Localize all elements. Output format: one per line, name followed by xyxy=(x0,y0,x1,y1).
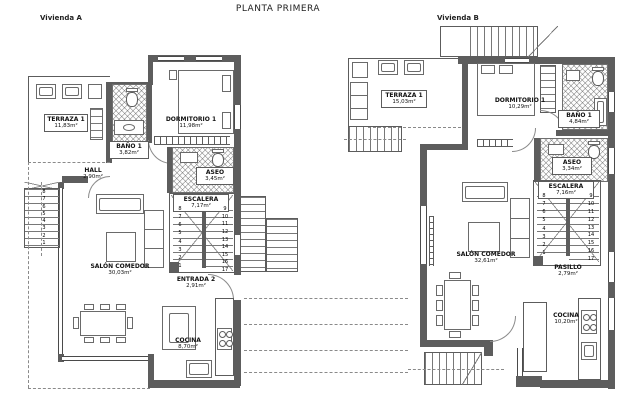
sofa-cushions xyxy=(465,186,505,199)
wall xyxy=(148,55,153,85)
chair xyxy=(116,337,126,343)
pillow xyxy=(222,75,231,92)
door-arc xyxy=(490,316,516,342)
stair-step-number: 7 xyxy=(42,197,45,202)
stair-step-number: 15 xyxy=(588,241,594,246)
window xyxy=(608,148,615,174)
stair-step-number: 17 xyxy=(588,257,594,262)
unit-a-label: Vivienda A xyxy=(40,14,82,22)
stair-step-number: 1 xyxy=(542,251,545,256)
dining-table xyxy=(444,280,471,330)
window xyxy=(62,356,150,361)
stair-step-number: 8 xyxy=(42,190,45,195)
chair xyxy=(472,285,479,296)
room-area: 15,03m² xyxy=(384,99,424,106)
wall xyxy=(420,340,492,347)
toilet-icon xyxy=(126,92,138,107)
stair-step-number: 14 xyxy=(222,245,228,250)
exterior-stair-right-lower xyxy=(266,218,298,272)
boundary-dashed xyxy=(28,388,150,389)
stair-numbers-right: 91011121314151617 xyxy=(218,207,232,273)
chair xyxy=(436,300,443,311)
room-area: 3,34m² xyxy=(555,166,589,173)
room-label-bano-b: BAÑO 1 4,84m² xyxy=(558,110,600,128)
stair-step-number: 2 xyxy=(542,243,545,248)
room-area: 3,82m² xyxy=(112,150,146,157)
radiator-icon xyxy=(477,139,513,147)
setback-line xyxy=(244,324,408,325)
chair xyxy=(84,337,94,343)
sofa xyxy=(350,82,368,120)
stair-step-number: 8 xyxy=(178,207,181,212)
armchair-seat xyxy=(65,87,79,96)
wall xyxy=(516,376,542,387)
chaise-cushion xyxy=(145,230,163,249)
room-area: 4,84m² xyxy=(561,119,597,126)
stair-step-number: 2 xyxy=(42,234,45,239)
room-label-dormitorio-a: DORMITORIO 1 11,98m² xyxy=(160,116,222,130)
sofa-cushion xyxy=(351,83,367,96)
window xyxy=(608,92,615,112)
unit-b-label: Vivienda B xyxy=(437,14,479,22)
stair-step-number: 3 xyxy=(542,235,545,240)
room-label-pasillo-b: PASILLO 2,79m² xyxy=(546,264,590,278)
door-arc xyxy=(512,128,536,152)
axis-line xyxy=(344,139,406,140)
room-label-hall-a: HALL 2,90m² xyxy=(72,167,114,181)
stair-step-number: 17 xyxy=(222,268,228,273)
sink-counter xyxy=(180,152,198,163)
room-area: 30,03m² xyxy=(86,270,154,277)
exterior-stair-right-upper xyxy=(240,196,266,272)
dining-table xyxy=(80,311,126,336)
room-area: 10,29m² xyxy=(490,104,550,111)
chair xyxy=(436,285,443,296)
chair xyxy=(472,315,479,326)
room-area: 2,90m² xyxy=(72,174,114,181)
wall xyxy=(533,256,543,266)
side-table xyxy=(352,62,368,78)
armchair xyxy=(62,84,82,99)
stair-step-number: 6 xyxy=(42,205,45,210)
window xyxy=(608,252,615,282)
pillow xyxy=(499,65,513,74)
stair-step-number: 12 xyxy=(588,218,594,223)
wall xyxy=(540,380,610,388)
stair-step-number: 3 xyxy=(178,248,181,253)
chaise xyxy=(144,210,164,268)
sink-counter xyxy=(566,70,580,81)
room-area: 8,70m² xyxy=(166,344,210,351)
stair-step-number: 7 xyxy=(178,215,181,220)
side-table xyxy=(88,84,102,99)
pillow xyxy=(481,65,495,74)
room-label-terraza-a: TERRAZA 1 11,83m² xyxy=(44,114,88,132)
sofa-cushions xyxy=(99,198,141,211)
wall xyxy=(234,300,241,386)
armchair xyxy=(378,60,398,75)
stair-step-number: 11 xyxy=(588,210,594,215)
stair-step-number: 3 xyxy=(42,226,45,231)
burner-icon xyxy=(590,324,597,331)
chair xyxy=(116,304,126,310)
burner-icon xyxy=(219,331,226,338)
room-label-dormitorio-b: DORMITORIO 1 10,29m² xyxy=(490,97,550,111)
stair-step-number: 6 xyxy=(542,210,545,215)
chair xyxy=(449,272,461,279)
sink-counter xyxy=(548,144,564,155)
floor-plan-canvas: PLANTA PRIMERA Vivienda A Vivienda B TER… xyxy=(0,0,630,401)
chair xyxy=(100,337,110,343)
chair xyxy=(100,304,110,310)
setback-line xyxy=(244,350,408,351)
boundary-dashed xyxy=(28,162,110,163)
radiator-icon xyxy=(429,216,434,266)
stair-step-number: 1 xyxy=(42,241,45,246)
room-area: 10,20m² xyxy=(542,319,590,326)
setback-line xyxy=(244,372,408,373)
stair-step-number: 8 xyxy=(542,194,545,199)
stair-step-number: 15 xyxy=(222,253,228,258)
room-area: 11,98m² xyxy=(160,123,222,130)
stair-stringer xyxy=(566,194,570,256)
window xyxy=(234,105,241,129)
stair-step-number: 2 xyxy=(178,256,181,261)
stair-step-number: 16 xyxy=(222,260,228,265)
stair-stringer xyxy=(202,208,206,268)
armchair-seat xyxy=(39,87,53,96)
stair-step-number: 9 xyxy=(223,207,226,212)
stair-step-number: 5 xyxy=(542,218,545,223)
stair-step-number: 4 xyxy=(42,219,45,224)
wall xyxy=(556,130,608,136)
stair-numbers-right: 91011121314151617 xyxy=(584,194,598,262)
armchair-seat xyxy=(407,63,421,72)
chaise xyxy=(510,198,530,258)
window xyxy=(608,298,615,330)
stair-step-number: 7 xyxy=(542,202,545,207)
sofa-cushion xyxy=(351,96,367,109)
armchair xyxy=(404,60,424,75)
stove-icon xyxy=(217,328,232,350)
burner-icon xyxy=(219,340,226,347)
room-label-aseo-b: ASEO 3,34m² xyxy=(552,157,592,175)
sink-basin-icon xyxy=(123,124,135,131)
sink-icon xyxy=(186,360,212,378)
stair-step-number: 9 xyxy=(589,194,592,199)
page-title: PLANTA PRIMERA xyxy=(198,4,358,14)
room-label-salon-b: SALÓN COMEDOR 32,61m² xyxy=(456,251,516,265)
stair-step-number: 5 xyxy=(42,212,45,217)
room-label-entrada-a: ENTRADA 2 2,91m² xyxy=(170,276,222,290)
coffee-table xyxy=(106,232,136,262)
roof-stair-hatch xyxy=(470,27,537,56)
sofa xyxy=(96,194,144,214)
chair xyxy=(472,300,479,311)
chair xyxy=(449,331,461,338)
burner-icon xyxy=(226,331,233,338)
wall xyxy=(484,340,493,356)
bedside-table xyxy=(169,70,177,80)
pillow xyxy=(222,112,231,129)
room-area: 2,91m² xyxy=(170,283,222,290)
room-label-salon-a: SALÓN COMEDOR 30,03m² xyxy=(86,263,154,277)
wall xyxy=(148,380,240,388)
stair-step-number: 13 xyxy=(588,226,594,231)
chaise-cushion xyxy=(511,199,529,219)
chair xyxy=(84,304,94,310)
toilet-icon xyxy=(592,71,604,86)
sink-icon xyxy=(581,342,597,360)
wall xyxy=(462,57,468,149)
stair-step-number: 4 xyxy=(178,240,181,245)
boundary-dashed xyxy=(28,162,29,388)
toilet-icon xyxy=(212,153,224,167)
room-label-terraza-b: TERRAZA 1 15,03m² xyxy=(381,90,427,108)
wall xyxy=(420,144,427,206)
axis-line xyxy=(408,369,504,370)
stair-step-number: 10 xyxy=(588,202,594,207)
window xyxy=(196,56,222,61)
chair xyxy=(73,317,79,329)
stair-step-number: 10 xyxy=(222,215,228,220)
wall xyxy=(420,144,468,150)
burner-icon xyxy=(590,314,597,321)
burner-icon xyxy=(226,340,233,347)
chair xyxy=(436,315,443,326)
window xyxy=(420,206,427,264)
chaise-cushion xyxy=(511,219,529,239)
coffee-table xyxy=(468,222,500,252)
setback-line xyxy=(244,298,408,299)
stair-step-number: 5 xyxy=(178,231,181,236)
room-area: 3,45m² xyxy=(199,176,231,183)
room-area: 32,61m² xyxy=(456,258,516,265)
chaise-cushion xyxy=(145,211,163,230)
sink-basin-icon xyxy=(189,363,209,375)
stair-step-number: 14 xyxy=(588,233,594,238)
roof-diagonal xyxy=(528,26,558,57)
sink-basin-icon xyxy=(584,345,594,357)
chair xyxy=(127,317,133,329)
wall xyxy=(147,84,152,143)
bench xyxy=(90,108,103,140)
sink-counter xyxy=(114,120,144,135)
sofa xyxy=(462,182,508,202)
stair-step-number: 12 xyxy=(222,230,228,235)
room-label-cocina-b: COCINA 10,20m² xyxy=(542,312,590,326)
stair-step-number: 13 xyxy=(222,238,228,243)
stair-numbers-outer: 87654321 xyxy=(40,190,48,246)
wall xyxy=(420,264,427,342)
room-area: 2,79m² xyxy=(546,271,590,278)
room-label-bano-a: BAÑO 1 3,82m² xyxy=(109,141,149,159)
stair-numbers-left: 87654321 xyxy=(538,194,550,256)
room-label-cocina-a: COCINA 8,70m² xyxy=(166,337,210,351)
stair-step-number: 6 xyxy=(178,223,181,228)
room-label-aseo-a: ASEO 3,45m² xyxy=(196,167,234,185)
stair-step-number: 1 xyxy=(178,264,181,269)
armchair-seat xyxy=(381,63,395,72)
stair-step-number: 11 xyxy=(222,222,228,227)
armchair xyxy=(36,84,56,99)
stair-step-number: 16 xyxy=(588,249,594,254)
stair-numbers-left: 87654321 xyxy=(174,207,186,269)
room-area: 11,83m² xyxy=(47,123,85,130)
window xyxy=(158,56,184,61)
stair-step-number: 4 xyxy=(542,227,545,232)
